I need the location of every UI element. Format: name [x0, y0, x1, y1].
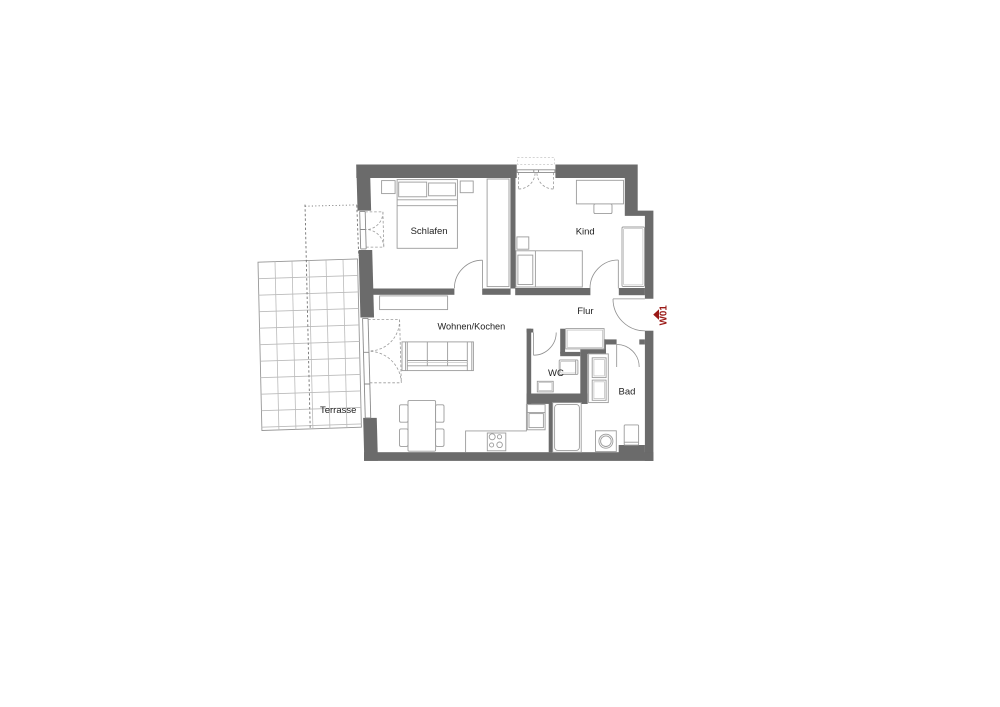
svg-text:Kind: Kind	[576, 227, 595, 238]
svg-text:WC: WC	[548, 368, 564, 379]
svg-text:Wohnen/Kochen: Wohnen/Kochen	[438, 322, 506, 332]
svg-text:Flur: Flur	[577, 306, 593, 317]
svg-text:Terrasse: Terrasse	[320, 405, 356, 416]
svg-text:W01: W01	[659, 305, 670, 326]
svg-text:Bad: Bad	[619, 387, 636, 398]
svg-text:Schlafen: Schlafen	[411, 226, 448, 237]
